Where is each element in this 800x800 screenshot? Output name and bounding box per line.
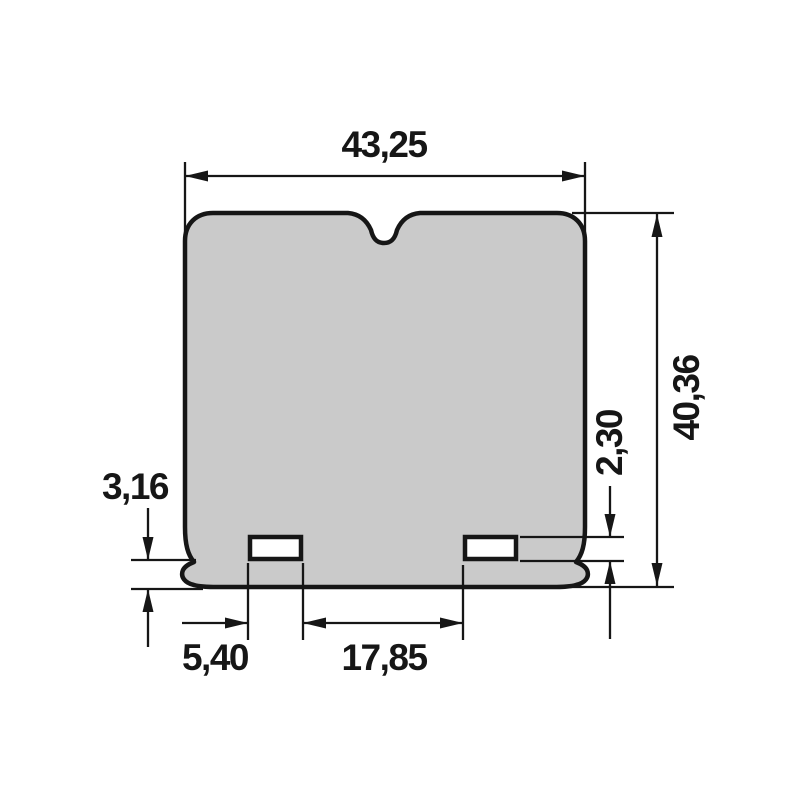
bottom-offset-label: 3,16: [102, 466, 169, 507]
overall-width-label: 43,25: [341, 124, 427, 165]
petal-outline: [182, 213, 588, 587]
reed-petal-part: [182, 213, 588, 587]
technical-drawing-canvas: 43,25 40,36 2,30 3,16 5,40 17,85: [0, 0, 800, 800]
arrowhead-down: [652, 563, 663, 586]
slot-height-label: 2,30: [589, 409, 630, 476]
slot-spacing-label: 17,85: [341, 637, 427, 678]
arrowhead-up: [143, 589, 154, 612]
left-mounting-slot: [250, 537, 301, 559]
arrowhead-right: [562, 171, 585, 182]
arrowhead-left: [185, 171, 208, 182]
slot-width-label: 5,40: [182, 637, 249, 678]
arrowhead-right: [225, 618, 248, 629]
arrowhead-down: [605, 514, 616, 537]
arrowhead-down: [143, 537, 154, 560]
arrowhead-left: [303, 618, 326, 629]
overall-height-label: 40,36: [666, 355, 707, 441]
reed-petal-dimension-drawing: 43,25 40,36 2,30 3,16 5,40 17,85: [0, 0, 800, 800]
arrowhead-up: [605, 561, 616, 584]
arrowhead-right: [440, 618, 463, 629]
right-mounting-slot: [465, 537, 516, 559]
arrowhead-up: [652, 214, 663, 237]
